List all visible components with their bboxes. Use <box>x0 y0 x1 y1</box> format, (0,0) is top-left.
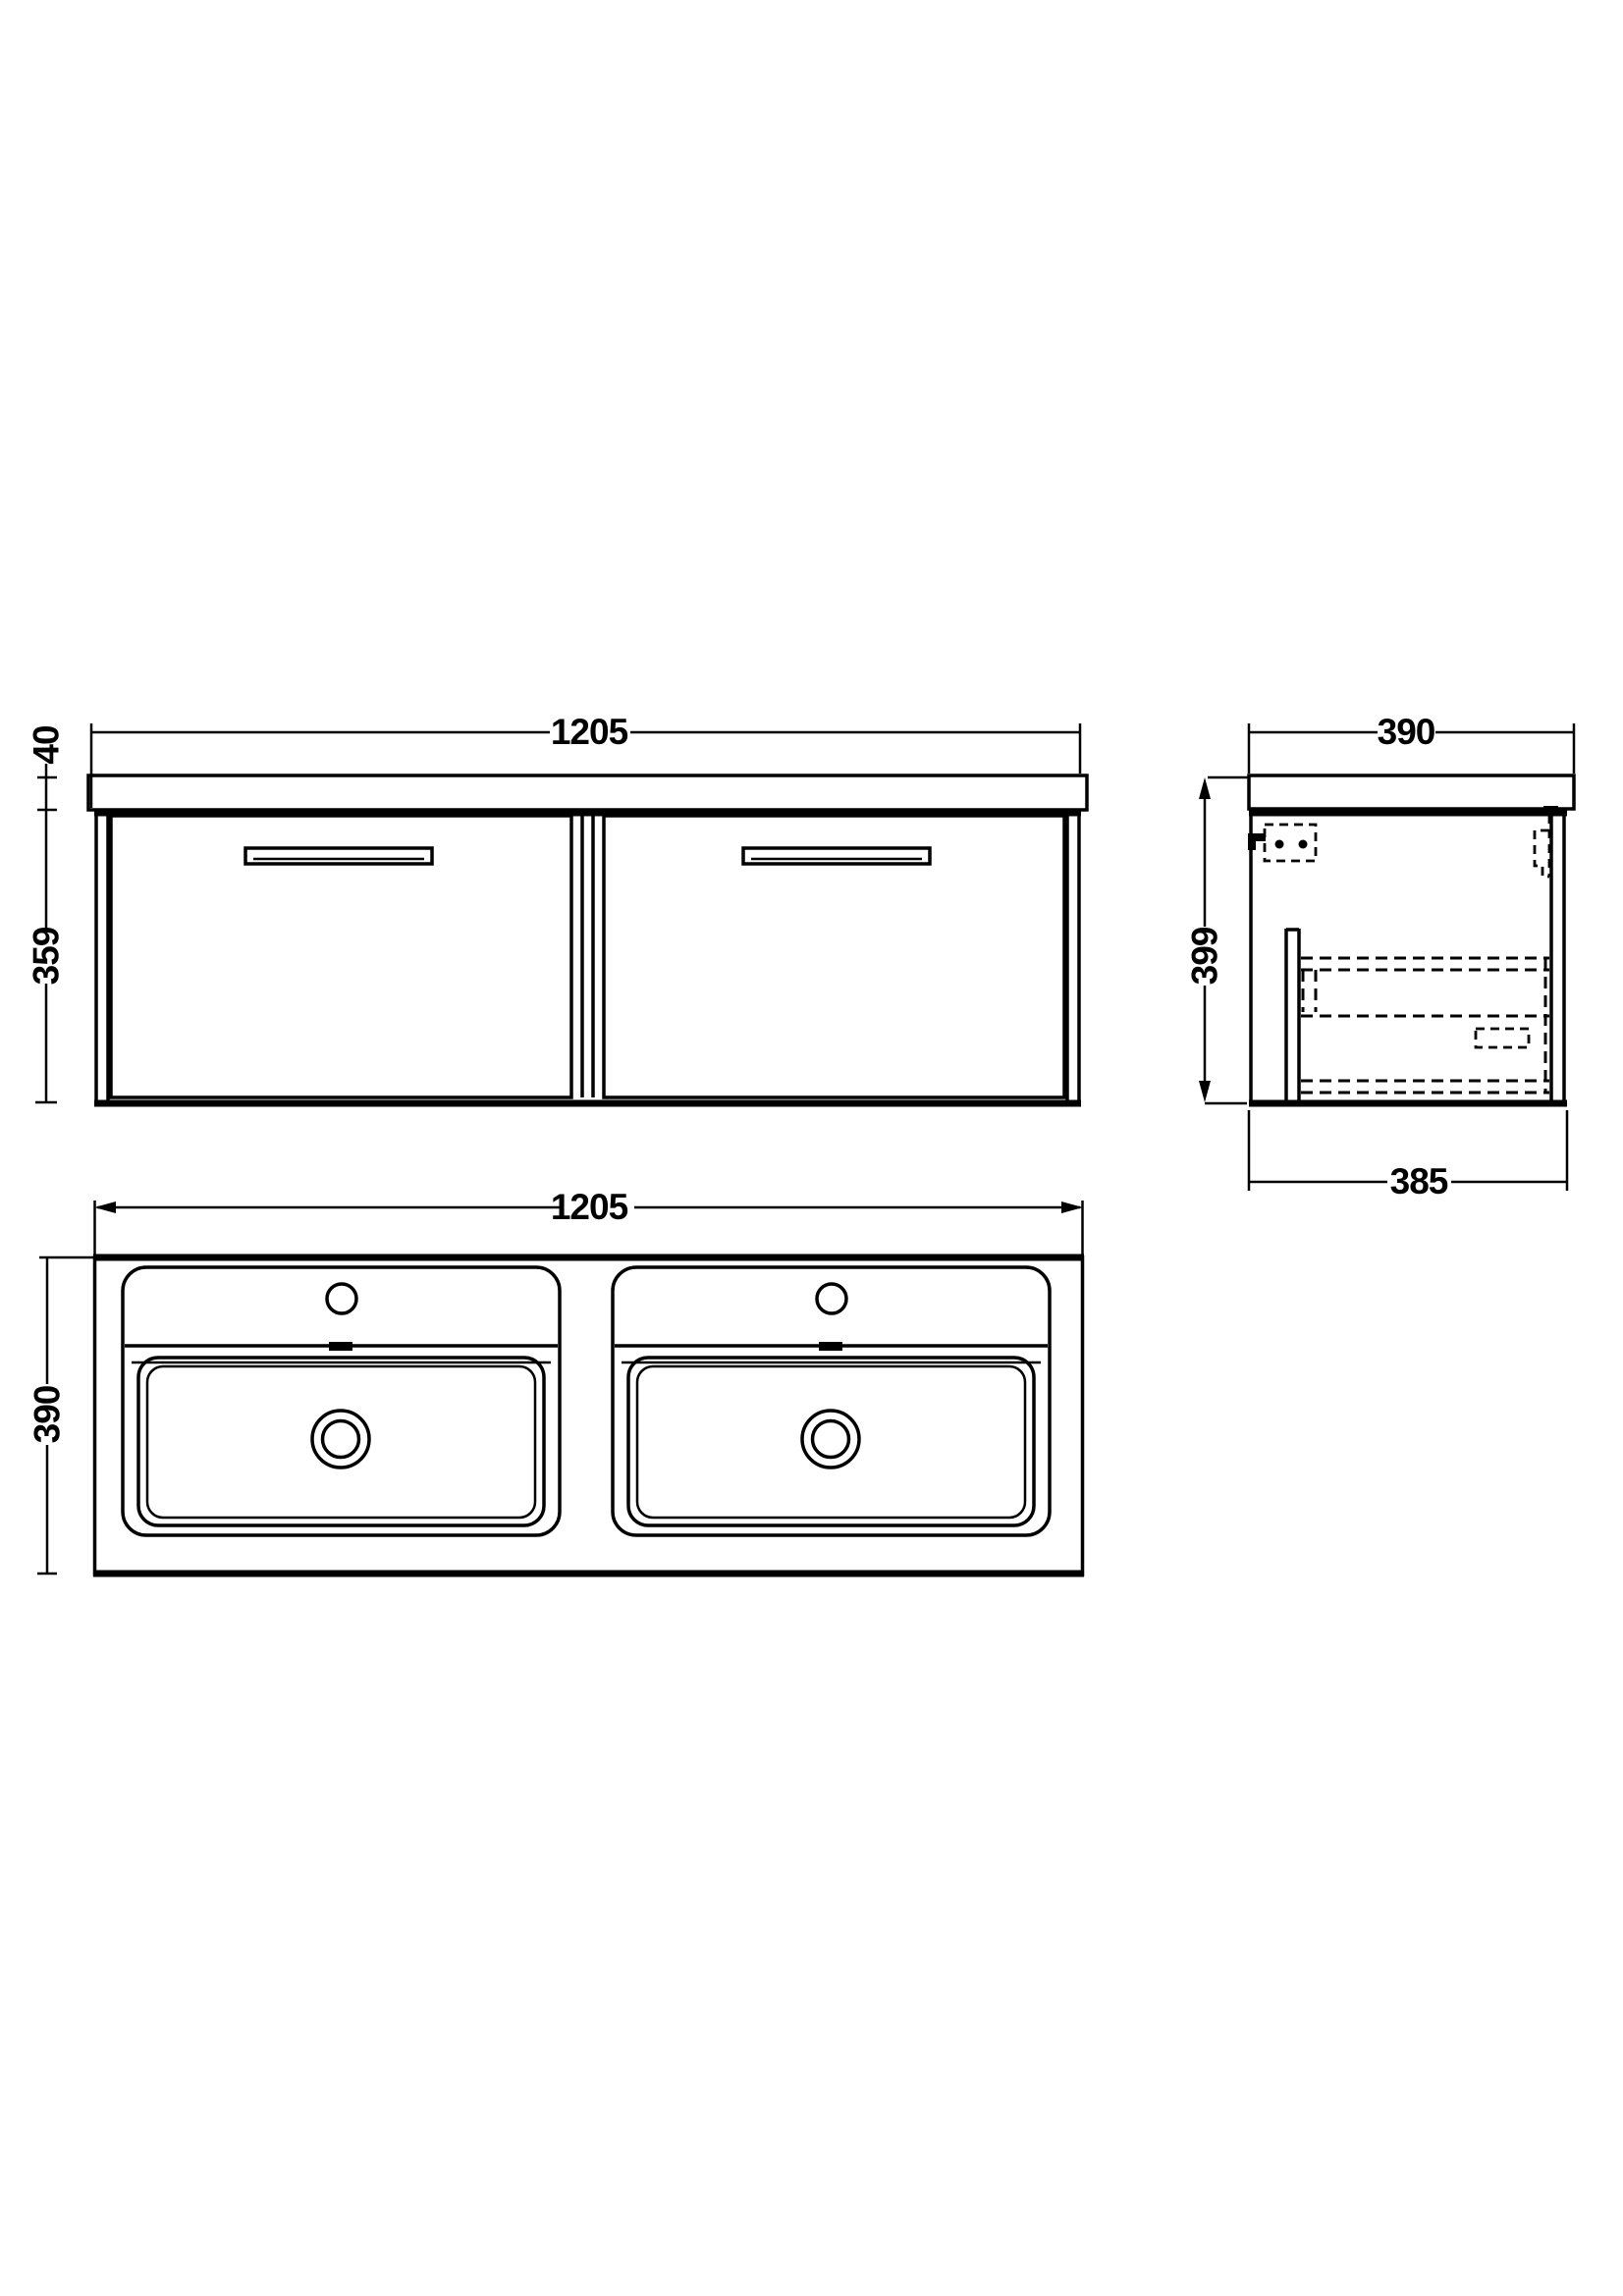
worktop-fixing-block <box>1543 806 1558 813</box>
side-depth-dim-text: 390 <box>1378 712 1435 752</box>
basin-left-overflow-slot <box>329 1342 352 1351</box>
technical-drawing-page: 1205 40 359 <box>0 0 1623 2296</box>
basin-right-overflow-slot <box>819 1342 842 1351</box>
front-cabinet-height-dim-text: 359 <box>27 927 67 985</box>
side-cabinet-depth-dim-text: 385 <box>1390 1161 1448 1201</box>
drawing-background <box>0 0 1623 2296</box>
side-height-dim-text: 399 <box>1185 927 1225 985</box>
front-width-dim-text: 1205 <box>551 712 628 752</box>
plan-depth-dim-text: 390 <box>27 1385 68 1443</box>
plan-width-dim-text: 1205 <box>551 1187 628 1227</box>
front-worktop-dim-text: 40 <box>27 725 67 765</box>
